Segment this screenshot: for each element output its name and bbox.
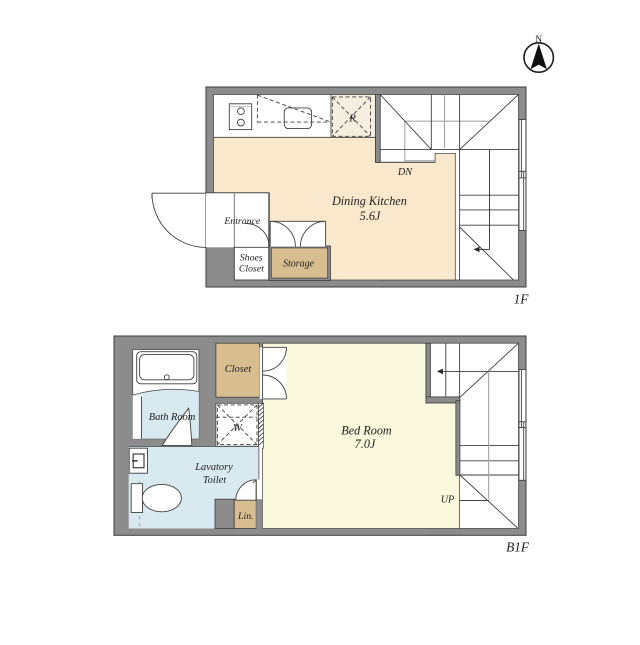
svg-text:W: W — [233, 422, 243, 434]
svg-text:1F: 1F — [514, 291, 530, 306]
svg-text:Closet: Closet — [225, 364, 253, 375]
svg-text:Shoes: Shoes — [240, 253, 263, 264]
svg-text:Bath Room: Bath Room — [149, 412, 196, 423]
svg-text:Dining Kitchen: Dining Kitchen — [331, 194, 407, 208]
svg-text:Bed Room: Bed Room — [341, 423, 392, 437]
svg-text:Closet: Closet — [239, 263, 264, 274]
svg-text:Lin.: Lin. — [237, 511, 254, 522]
svg-text:Storage: Storage — [283, 258, 315, 269]
svg-text:UP: UP — [441, 494, 455, 505]
svg-text:Lavatory: Lavatory — [194, 462, 233, 473]
svg-text:B1F: B1F — [506, 540, 530, 555]
svg-text:DN: DN — [397, 167, 413, 178]
svg-text:N: N — [535, 35, 542, 45]
svg-text:Toilet: Toilet — [203, 475, 227, 486]
svg-text:5.6J: 5.6J — [360, 209, 381, 223]
svg-text:R: R — [348, 112, 356, 124]
svg-text:7.0J: 7.0J — [355, 437, 376, 451]
